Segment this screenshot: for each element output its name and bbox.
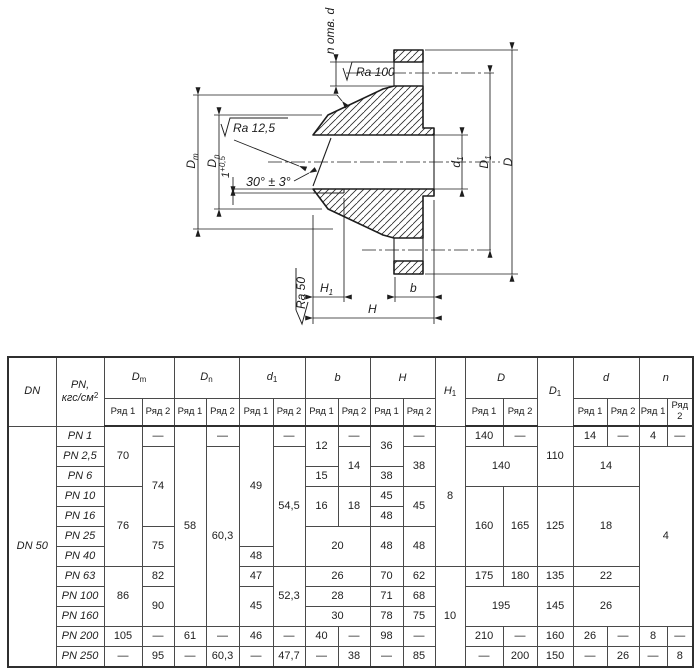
dim-label-dm: Dm	[184, 153, 200, 169]
table-cell: 70	[370, 567, 403, 587]
table-cell: —	[503, 627, 537, 647]
row-series-header: Ряд 1	[573, 399, 607, 427]
table-cell: 54,5	[273, 447, 305, 567]
table-cell: —	[273, 426, 305, 447]
table-cell: 82	[142, 567, 174, 587]
table-cell: 26	[607, 647, 639, 668]
table-cell: 18	[338, 487, 370, 527]
table-cell: 180	[503, 567, 537, 587]
spec-table: DNPN,кгс/см2DmDnd1bHH1DD1dn Ряд 1Ряд 2Ря…	[7, 356, 694, 668]
table-cell: 105	[104, 627, 142, 647]
table-cell: 165	[503, 487, 537, 567]
table-cell: 26	[573, 627, 607, 647]
table-cell: —	[142, 426, 174, 447]
table-cell: —	[403, 627, 435, 647]
row-series-header: Ряд 2	[503, 399, 537, 427]
table-cell: 4	[639, 426, 667, 447]
table-cell: 22	[573, 567, 639, 587]
table-cell: 45	[239, 587, 273, 627]
table-cell: 160	[537, 627, 573, 647]
table-cell: 14	[338, 447, 370, 487]
row-series-header: Ряд 2	[206, 399, 239, 427]
table-cell: —	[174, 647, 206, 668]
table-cell: PN 100	[56, 587, 104, 607]
table-cell: 86	[104, 567, 142, 627]
flange-section-drawing: n отв. d Ra 100 Ra 12,5 Ra 50 30° ± 3° 1…	[0, 0, 700, 356]
dim-label-D: D	[501, 157, 515, 166]
dim-label-H: H	[368, 302, 377, 316]
table-cell: PN 250	[56, 647, 104, 668]
table-cell: 110	[537, 426, 573, 487]
table-cell: 85	[403, 647, 435, 668]
table-cell: 90	[142, 587, 174, 627]
spec-table-body: DN 50PN 170—58—49—12—36—8140—11014—4—PN …	[8, 426, 693, 667]
table-cell: 76	[104, 487, 142, 567]
table-cell: 16	[305, 487, 338, 527]
table-cell: 48	[239, 547, 273, 567]
table-cell: 38	[338, 647, 370, 668]
table-cell: —	[338, 627, 370, 647]
table-cell: 14	[573, 447, 639, 487]
table-cell: 60,3	[206, 647, 239, 668]
table-cell: —	[206, 627, 239, 647]
spec-table-head: DNPN,кгс/см2DmDnd1bHH1DD1dn Ряд 1Ряд 2Ря…	[8, 357, 693, 426]
table-cell: —	[305, 647, 338, 668]
table-cell: 75	[142, 527, 174, 567]
table-cell: —	[667, 426, 693, 447]
dim-label-D1: D1	[477, 155, 493, 168]
table-row: PN 250—95—60,3—47,7—38—85—200150—26—8	[8, 647, 693, 668]
table-cell: PN 160	[56, 607, 104, 627]
dim-label-b: b	[410, 281, 417, 295]
table-cell: 160	[465, 487, 503, 567]
table-cell: —	[607, 627, 639, 647]
bolt-rim-bottom-section	[394, 261, 423, 274]
table-cell: —	[370, 647, 403, 668]
table-cell: —	[403, 426, 435, 447]
col-header: D	[465, 357, 537, 399]
col-header: H1	[435, 357, 465, 426]
row-series-header: Ряд 1	[465, 399, 503, 427]
table-cell: 49	[239, 426, 273, 547]
dim-label-d1: d1	[449, 156, 465, 167]
table-cell: —	[206, 426, 239, 447]
row-series-header: Ряд 1	[174, 399, 206, 427]
dim-label-dn: Dn	[205, 154, 221, 168]
label-ra50: Ra 50	[294, 277, 308, 309]
extension-lines	[193, 50, 518, 324]
table-cell: 200	[503, 647, 537, 668]
table-cell: 135	[537, 567, 573, 587]
table-cell: PN 2,5	[56, 447, 104, 467]
table-cell: —	[239, 647, 273, 668]
table-cell: PN 6	[56, 467, 104, 487]
table-cell: 46	[239, 627, 273, 647]
table-row: PN 10761618454516016512518	[8, 487, 693, 507]
row-series-header: Ряд 1	[305, 399, 338, 427]
table-cell: 26	[305, 567, 370, 587]
col-header: b	[305, 357, 370, 399]
row-series-header: Ряд 2	[607, 399, 639, 427]
table-cell: 40	[305, 627, 338, 647]
table-row: DN 50PN 170—58—49—12—36—8140—11014—4—	[8, 426, 693, 447]
table-cell: 58	[174, 426, 206, 627]
table-cell: 30	[305, 607, 370, 627]
table-cell: 150	[537, 647, 573, 668]
row-series-header: Ряд 2	[403, 399, 435, 427]
row-series-header: Ряд 1	[104, 399, 142, 427]
table-cell: 15	[305, 467, 338, 487]
table-cell: —	[573, 647, 607, 668]
row-series-header: Ряд 2	[667, 399, 693, 427]
table-cell: 8	[639, 627, 667, 647]
table-cell: 60,3	[206, 447, 239, 627]
row-series-header: Ряд 2	[142, 399, 174, 427]
table-cell: 210	[465, 627, 503, 647]
table-cell: 4	[639, 447, 693, 627]
table-row: PN 6386824752,32670621017518013522	[8, 567, 693, 587]
table-cell: —	[503, 426, 537, 447]
table-cell: 175	[465, 567, 503, 587]
table-cell: 48	[370, 507, 403, 527]
table-cell: PN 40	[56, 547, 104, 567]
row-series-header: Ряд 1	[639, 399, 667, 427]
row-series-header: Ряд 2	[273, 399, 305, 427]
col-header: H	[370, 357, 435, 399]
table-cell: —	[667, 627, 693, 647]
table-cell: PN 63	[56, 567, 104, 587]
table-cell: 12	[305, 426, 338, 467]
table-cell: 14	[573, 426, 607, 447]
col-header: Dm	[104, 357, 174, 399]
table-cell: 10	[435, 567, 465, 668]
table-cell: DN 50	[8, 426, 56, 667]
table-cell: —	[639, 647, 667, 668]
table-cell: 75	[403, 607, 435, 627]
table-cell: —	[465, 647, 503, 668]
table-cell: 8	[435, 426, 465, 567]
table-cell: 48	[403, 527, 435, 567]
table-cell: —	[142, 627, 174, 647]
table-cell: —	[338, 426, 370, 447]
row-series-header: Ряд 2	[338, 399, 370, 427]
label-n-holes: n отв. d	[323, 8, 337, 55]
table-cell: 8	[667, 647, 693, 668]
table-cell: 48	[370, 527, 403, 567]
row-series-header: Ряд 1	[370, 399, 403, 427]
label-angle: 30° ± 3°	[246, 175, 291, 189]
table-cell: 145	[537, 587, 573, 627]
table-cell: 125	[537, 487, 573, 567]
spec-table-container: DNPN,кгс/см2DmDnd1bHH1DD1dn Ряд 1Ряд 2Ря…	[7, 356, 694, 668]
table-cell: 140	[465, 426, 503, 447]
table-cell: —	[607, 426, 639, 447]
col-header: d1	[239, 357, 305, 399]
table-cell: 45	[370, 487, 403, 507]
table-cell: 140	[465, 447, 537, 487]
dim-label-H1: H1	[320, 281, 333, 297]
table-cell: 47,7	[273, 647, 305, 668]
table-cell: PN 1	[56, 426, 104, 447]
table-cell: 28	[305, 587, 370, 607]
table-cell: 18	[573, 487, 639, 567]
table-cell: 95	[142, 647, 174, 668]
col-header: PN,кгс/см2	[56, 357, 104, 426]
upper-body-section	[313, 86, 434, 135]
table-cell: PN 10	[56, 487, 104, 507]
table-cell: 52,3	[273, 567, 305, 627]
table-cell: —	[104, 647, 142, 668]
header-row-2: Ряд 1Ряд 2Ряд 1Ряд 2Ряд 1Ряд 2Ряд 1Ряд 2…	[8, 399, 693, 427]
label-ra125: Ra 12,5	[233, 121, 275, 135]
col-header: D1	[537, 357, 573, 426]
label-ra100: Ra 100	[356, 65, 395, 79]
table-cell: 38	[403, 447, 435, 487]
table-cell: PN 200	[56, 627, 104, 647]
table-cell: 195	[465, 587, 537, 627]
header-row-1: DNPN,кгс/см2DmDnd1bHH1DD1dn	[8, 357, 693, 399]
table-cell: 20	[305, 527, 370, 567]
col-header: DN	[8, 357, 56, 426]
table-cell: 47	[239, 567, 273, 587]
angle-leader	[294, 173, 309, 181]
table-cell: 70	[104, 426, 142, 487]
col-header: n	[639, 357, 693, 399]
ra125-leader	[234, 140, 299, 166]
table-cell: 68	[403, 587, 435, 607]
lower-body-section	[313, 189, 434, 238]
row-series-header: Ряд 1	[239, 399, 273, 427]
table-cell: 98	[370, 627, 403, 647]
table-cell: 26	[573, 587, 639, 627]
bolt-rim-top-section	[394, 50, 423, 62]
table-cell: 74	[142, 447, 174, 527]
table-cell: PN 16	[56, 507, 104, 527]
table-cell: 78	[370, 607, 403, 627]
table-cell: PN 25	[56, 527, 104, 547]
table-cell: 36	[370, 426, 403, 467]
table-cell: 62	[403, 567, 435, 587]
table-cell: 38	[370, 467, 403, 487]
table-cell: 61	[174, 627, 206, 647]
col-header: Dn	[174, 357, 239, 399]
table-cell: 45	[403, 487, 435, 527]
table-row: PN 200105—61—46—40—98—210—16026—8—	[8, 627, 693, 647]
table-cell: 71	[370, 587, 403, 607]
table-cell: —	[273, 627, 305, 647]
col-header: d	[573, 357, 639, 399]
